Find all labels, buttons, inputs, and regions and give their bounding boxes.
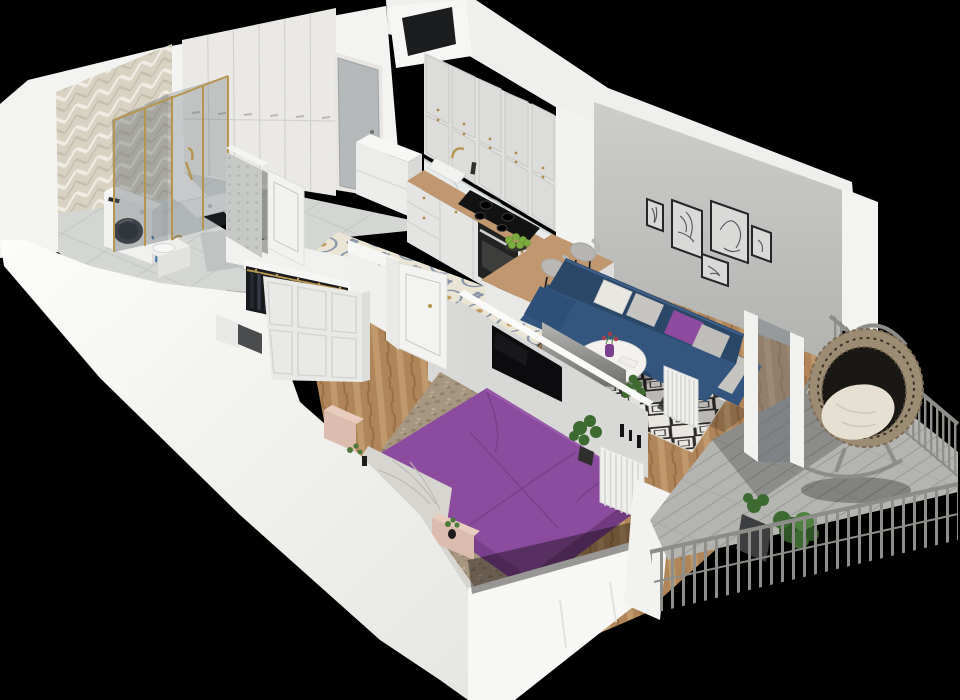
- floor-plan-render: [0, 0, 960, 700]
- bedroom-door-handle[interactable]: [428, 304, 432, 308]
- shower-glass-2: [168, 76, 228, 240]
- apartment-3d-scene: [0, 0, 960, 700]
- door-handle[interactable]: [370, 130, 374, 134]
- closet-cabinet[interactable]: [263, 276, 370, 382]
- balcony-door-glass: [758, 318, 790, 462]
- art-frame-2: [672, 200, 702, 258]
- art-frame-1: [647, 199, 663, 231]
- east-corner-pillar: [842, 188, 878, 344]
- basin: [153, 244, 175, 253]
- flower-vase: [605, 344, 614, 357]
- bench-pot: [448, 529, 456, 539]
